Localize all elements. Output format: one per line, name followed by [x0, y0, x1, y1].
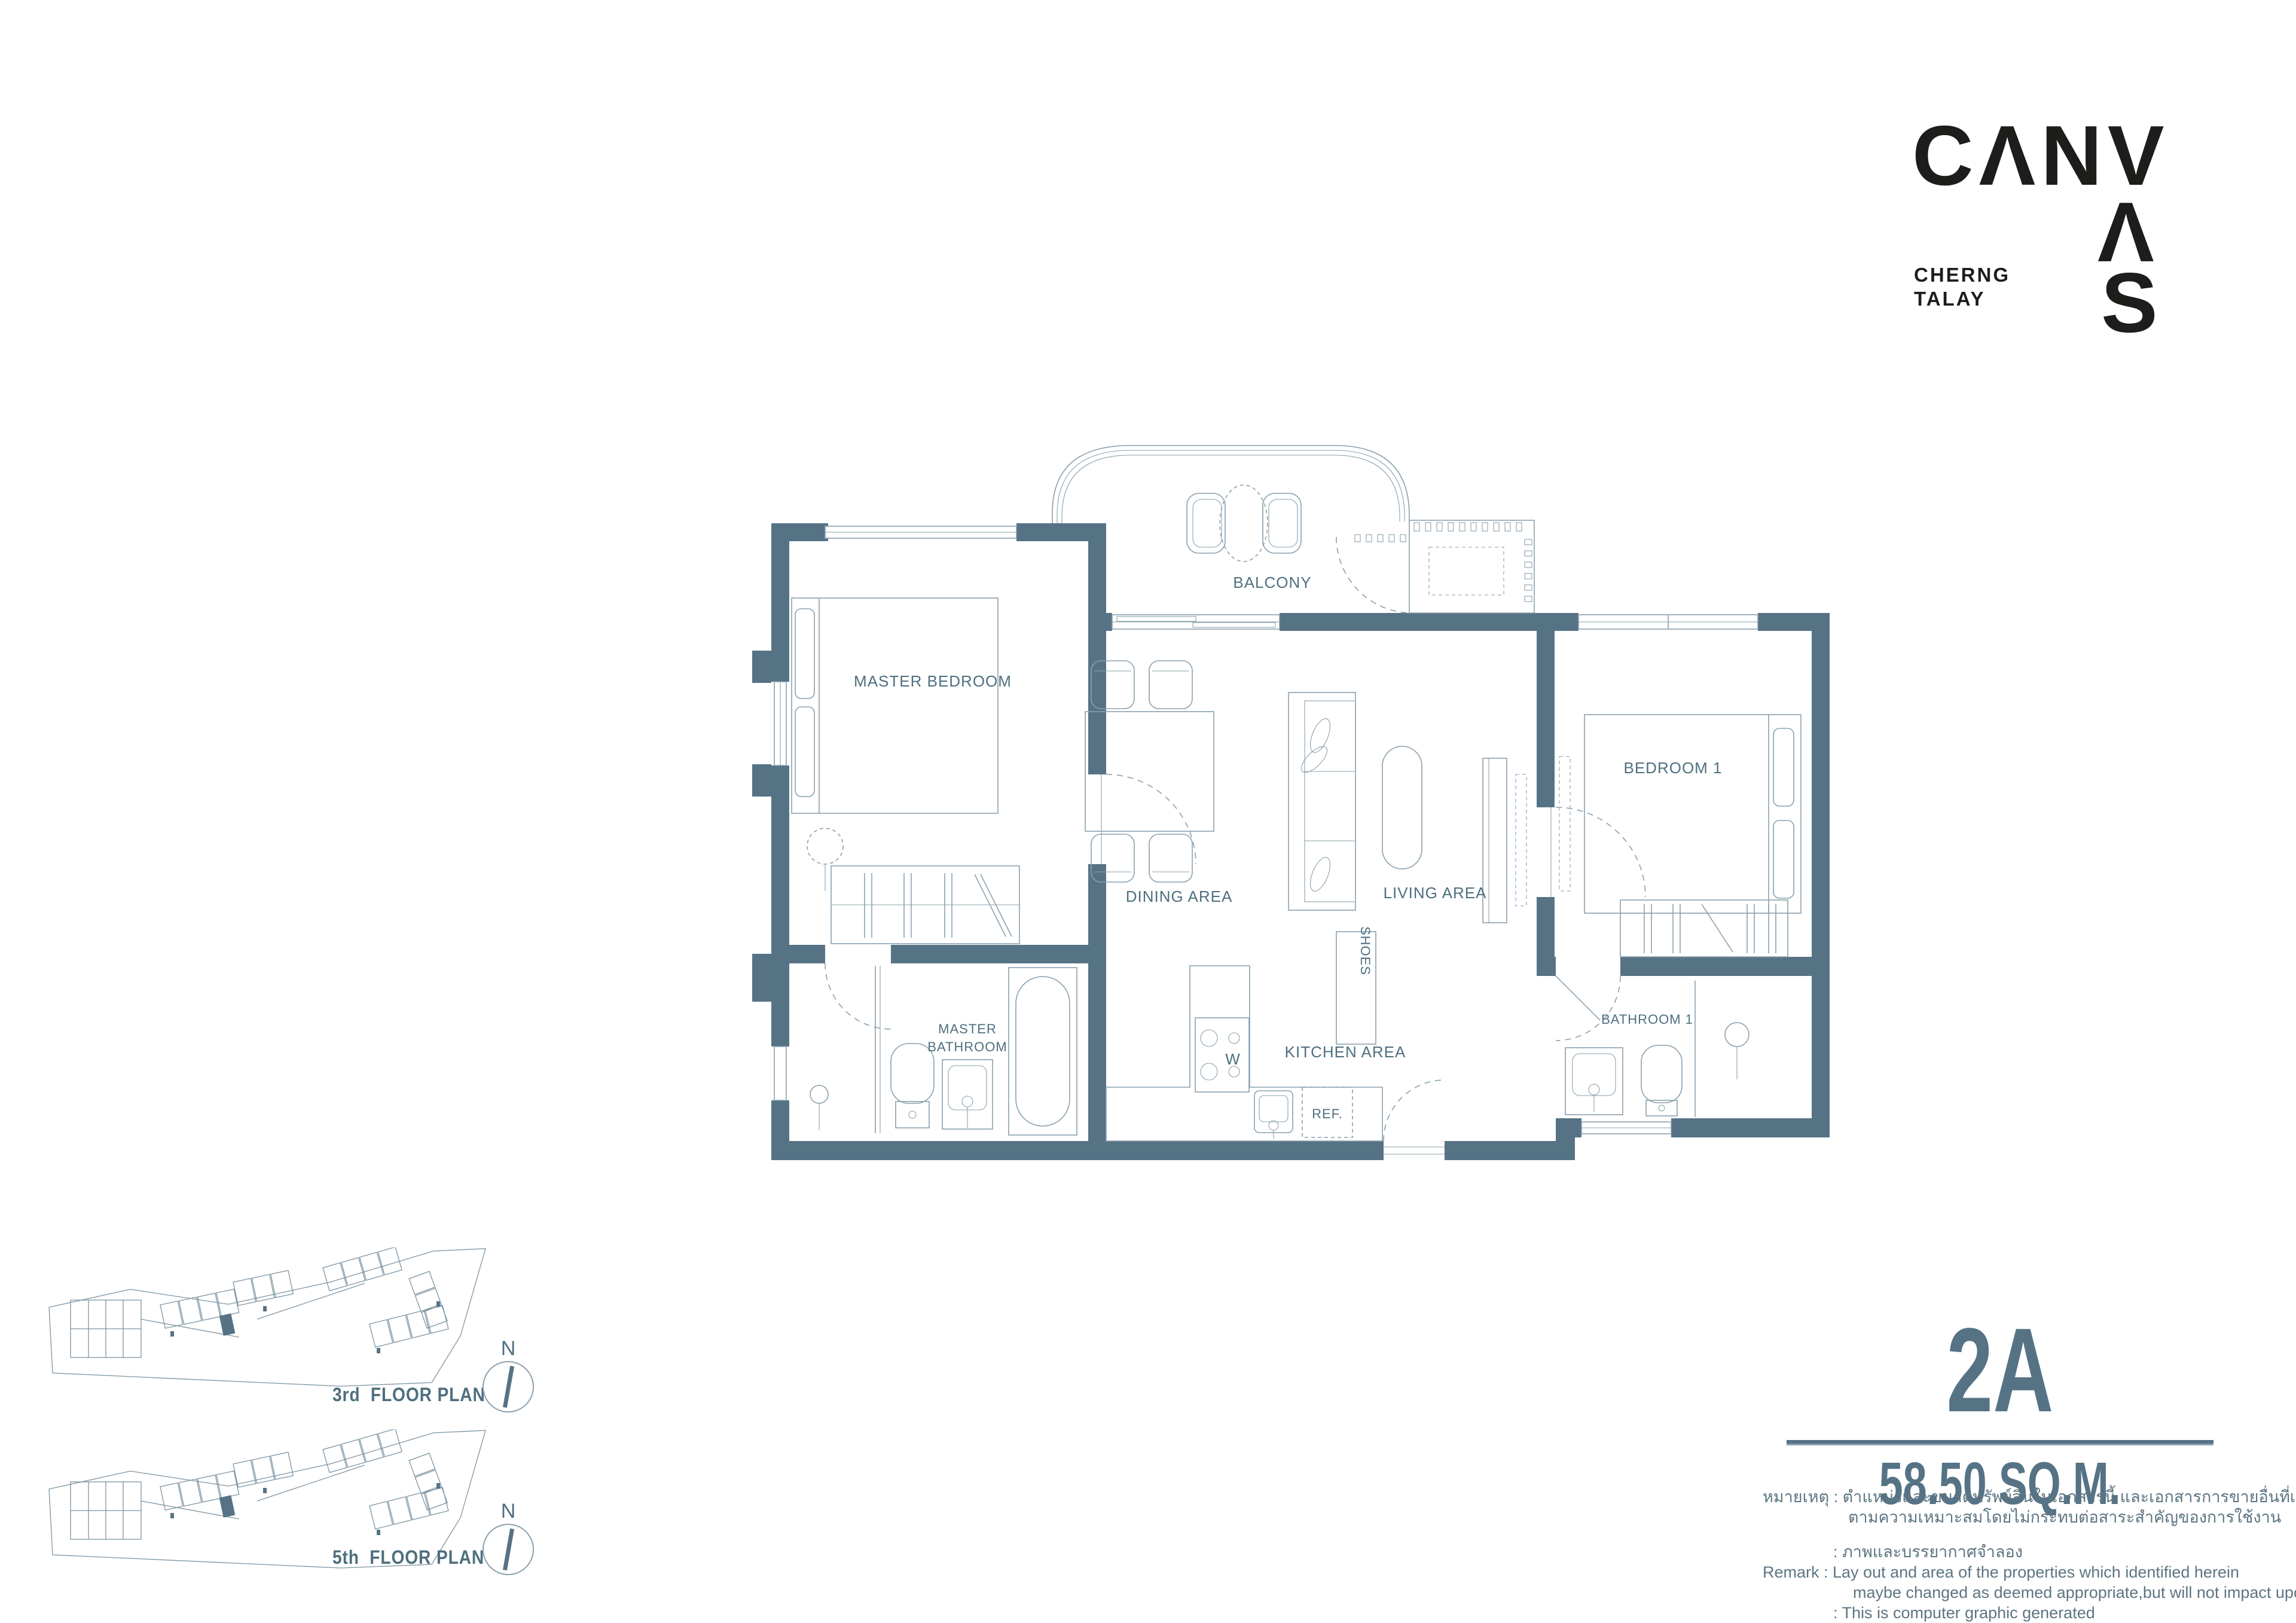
compass-5th-n: N — [478, 1501, 538, 1521]
balcony-railing — [1052, 446, 1409, 526]
label-master-bedroom: MASTER BEDROOM — [854, 672, 1012, 690]
windows — [774, 526, 1758, 1154]
label-master-bathroom-line2: BATHROOM — [927, 1039, 1007, 1054]
ac-ledge — [1355, 520, 1534, 613]
site-plan-5th-drawing — [42, 1429, 487, 1603]
floor-plan-drawing: MASTER BEDROOM BALCONY DINING AREA LIVIN… — [747, 413, 1854, 1166]
remark-line-en-2: maybe changed as deemed appropriate,but … — [1763, 1582, 2296, 1603]
brand-logo: CΛNV Λ S CHERNG TALAY — [1912, 114, 2169, 317]
remark-line-thai-2: ตามความเหมาะสมโดยไม่กระทบต่อสาระสำคัญของ… — [1763, 1507, 2296, 1527]
site-plan-5th — [42, 1429, 487, 1603]
label-ref: REF. — [1312, 1106, 1343, 1121]
compass-icon — [483, 1361, 534, 1413]
louver-icon — [1355, 523, 1532, 602]
remark-line-en-1: Remark : Lay out and area of the propert… — [1763, 1562, 2296, 1582]
brand-location-line2: TALAY — [1914, 287, 2010, 311]
compass-5th: N — [478, 1501, 538, 1575]
brand-location-line1: CHERNG — [1914, 263, 2010, 287]
label-living-area: LIVING AREA — [1384, 884, 1487, 902]
compass-3rd: N — [478, 1338, 538, 1413]
site-plan-3rd-label: 3rd FLOOR PLAN — [332, 1384, 486, 1406]
label-balcony: BALCONY — [1233, 573, 1311, 591]
master-bedroom-furniture — [792, 598, 1019, 944]
remark-line-thai-3: : ภาพและบรรยากาศจำลอง — [1763, 1542, 2296, 1562]
label-dining-area: DINING AREA — [1126, 887, 1233, 905]
compass-needle-icon — [503, 1366, 514, 1408]
site-plan-5th-label: 5th FLOOR PLAN — [332, 1546, 484, 1569]
remark-block: หมายเหตุ : ตำแหน่งและขนาดทรัพย์สินในเอกส… — [1763, 1487, 2296, 1623]
unit-code: 2A — [1947, 1319, 2054, 1422]
remark-line-en-3: : This is computer graphic generated — [1763, 1603, 2296, 1623]
unit-info: 2A 58.50 SQ.M. — [1785, 1319, 2215, 1512]
label-kitchen-area: KITCHEN AREA — [1285, 1043, 1406, 1061]
highlighted-unit — [170, 1301, 440, 1353]
compass-icon — [483, 1524, 534, 1575]
label-bedroom1: BEDROOM 1 — [1623, 759, 1722, 777]
compass-needle-icon — [503, 1529, 514, 1570]
compass-3rd-n: N — [478, 1338, 538, 1359]
bedroom1-furniture — [1559, 715, 1801, 957]
page: { "brand": { "name_row1": "CΛNV", "name_… — [0, 0, 2296, 1622]
label-washer: W — [1225, 1050, 1241, 1068]
unit-divider — [1787, 1440, 2213, 1445]
label-shoes: SHOES — [1358, 926, 1373, 975]
balcony-furniture — [1187, 485, 1301, 562]
brand-name-row3: S — [2101, 261, 2158, 346]
floor-plan: MASTER BEDROOM BALCONY DINING AREA LIVIN… — [747, 413, 1854, 1166]
highlighted-unit — [170, 1483, 440, 1535]
brand-location: CHERNG TALAY — [1914, 263, 2010, 311]
remark-line-thai-1: หมายเหตุ : ตำแหน่งและขนาดทรัพย์สินในเอกส… — [1763, 1487, 2296, 1507]
label-master-bathroom-line1: MASTER — [938, 1021, 997, 1036]
label-bathroom1: BATHROOM 1 — [1601, 1012, 1693, 1027]
bathroom1-fixtures — [1565, 981, 1749, 1117]
